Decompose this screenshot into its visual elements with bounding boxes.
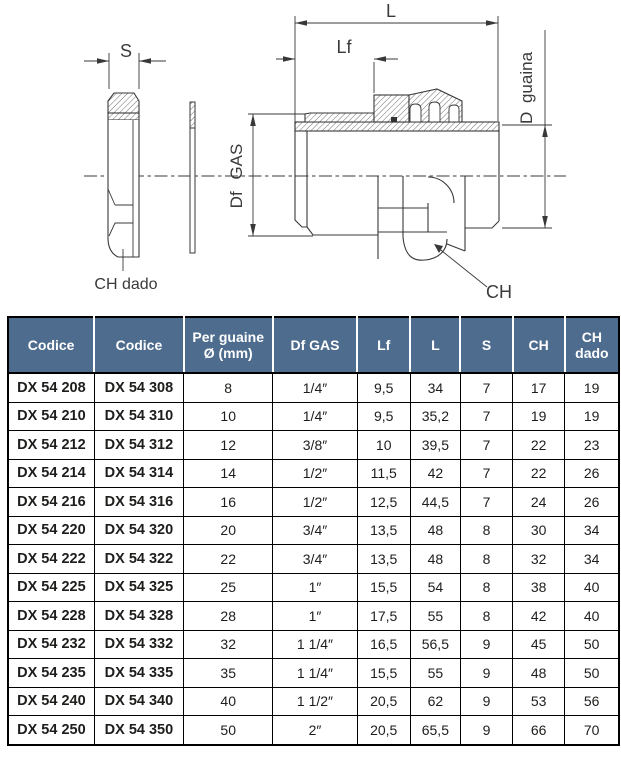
column-header-ch: CH (513, 317, 565, 373)
value-cell: 28 (184, 602, 273, 631)
value-cell: 45 (513, 630, 565, 659)
code-cell: DX 54 325 (94, 573, 183, 602)
column-header-per-guaine: Per guaine Ø (mm) (184, 317, 273, 373)
value-cell: 1 1/4″ (273, 630, 357, 659)
value-cell: 12 (184, 431, 273, 460)
value-cell: 32 (513, 545, 565, 574)
value-cell: 65,5 (410, 716, 460, 745)
value-cell: 11,5 (357, 459, 410, 488)
value-cell: 42 (513, 602, 565, 631)
value-cell: 55 (410, 659, 460, 688)
table-row: DX 54 228DX 54 328281″17,55584240 (8, 602, 619, 631)
dim-label-d-guaina: D guaina (517, 51, 536, 124)
value-cell: 10 (184, 402, 273, 431)
value-cell: 16 (184, 488, 273, 517)
table-row: DX 54 208DX 54 30881/4″9,53471719 (8, 373, 619, 402)
dim-label-ch-dado: CH dado (94, 276, 157, 293)
value-cell: 7 (460, 459, 512, 488)
value-cell: 16,5 (357, 630, 410, 659)
value-cell: 3/8″ (273, 431, 357, 460)
column-header-df-gas: Df GAS (273, 317, 357, 373)
value-cell: 1/2″ (273, 488, 357, 517)
column-header-l: L (410, 317, 460, 373)
value-cell: 1 1/4″ (273, 659, 357, 688)
value-cell: 9 (460, 630, 512, 659)
arrowhead (542, 125, 548, 137)
value-cell: 40 (565, 602, 619, 631)
arrowhead (374, 56, 386, 62)
dim-label-l: L (386, 1, 396, 21)
technical-drawing: S CH dado (0, 0, 621, 312)
dim-lf (276, 59, 398, 93)
value-cell: 66 (513, 716, 565, 745)
value-cell: 9,5 (357, 402, 410, 431)
gland-body-section (295, 89, 499, 260)
value-cell: 8 (460, 573, 512, 602)
arrowhead (250, 224, 256, 236)
arrowhead (283, 56, 295, 62)
code-cell: DX 54 240 (8, 687, 94, 716)
dim-label-ch: CH (486, 282, 512, 302)
value-cell: 7 (460, 402, 512, 431)
arrowhead (434, 244, 443, 253)
code-cell: DX 54 316 (94, 488, 183, 517)
value-cell: 34 (565, 545, 619, 574)
washer-side-view (190, 102, 195, 253)
value-cell: 30 (513, 516, 565, 545)
value-cell: 42 (410, 459, 460, 488)
value-cell: 50 (565, 659, 619, 688)
code-cell: DX 54 312 (94, 431, 183, 460)
value-cell: 9,5 (357, 373, 410, 402)
table-row: DX 54 225DX 54 325251″15,55483840 (8, 573, 619, 602)
value-cell: 13,5 (357, 545, 410, 574)
code-cell: DX 54 328 (94, 602, 183, 631)
code-cell: DX 54 220 (8, 516, 94, 545)
value-cell: 26 (565, 488, 619, 517)
value-cell: 8 (460, 516, 512, 545)
code-cell: DX 54 335 (94, 659, 183, 688)
table-body: DX 54 208DX 54 30881/4″9,53471719DX 54 2… (8, 373, 619, 745)
dim-label-s: S (120, 41, 132, 61)
column-header-codice-2: Codice (94, 317, 183, 373)
value-cell: 3/4″ (273, 516, 357, 545)
value-cell: 48 (513, 659, 565, 688)
value-cell: 35 (184, 659, 273, 688)
code-cell: DX 54 216 (8, 488, 94, 517)
code-cell: DX 54 228 (8, 602, 94, 631)
table-row: DX 54 220DX 54 320203/4″13,54883034 (8, 516, 619, 545)
value-cell: 53 (513, 687, 565, 716)
value-cell: 40 (565, 573, 619, 602)
table-row: DX 54 232DX 54 332321 1/4″16,556,594550 (8, 630, 619, 659)
code-cell: DX 54 250 (8, 716, 94, 745)
code-cell: DX 54 225 (8, 573, 94, 602)
code-cell: DX 54 320 (94, 516, 183, 545)
arrowhead (139, 58, 151, 64)
value-cell: 20 (184, 516, 273, 545)
value-cell: 40 (184, 687, 273, 716)
code-cell: DX 54 222 (8, 545, 94, 574)
value-cell: 39,5 (410, 431, 460, 460)
value-cell: 9 (460, 659, 512, 688)
table-row: DX 54 212DX 54 312123/8″1039,572223 (8, 431, 619, 460)
code-cell: DX 54 310 (94, 402, 183, 431)
value-cell: 54 (410, 573, 460, 602)
value-cell: 9 (460, 716, 512, 745)
value-cell: 1/4″ (273, 402, 357, 431)
value-cell: 2″ (273, 716, 357, 745)
table-row: DX 54 222DX 54 322223/4″13,54883234 (8, 545, 619, 574)
code-cell: DX 54 214 (8, 459, 94, 488)
value-cell: 48 (410, 516, 460, 545)
arrowhead (295, 20, 307, 26)
value-cell: 19 (565, 402, 619, 431)
column-header-s: S (460, 317, 512, 373)
value-cell: 24 (513, 488, 565, 517)
code-cell: DX 54 340 (94, 687, 183, 716)
code-cell: DX 54 308 (94, 373, 183, 402)
value-cell: 8 (460, 545, 512, 574)
value-cell: 44,5 (410, 488, 460, 517)
value-cell: 70 (565, 716, 619, 745)
code-cell: DX 54 235 (8, 659, 94, 688)
dim-label-df-gas: Df GAS (227, 144, 246, 209)
value-cell: 23 (565, 431, 619, 460)
dimensions-table: Codice Codice Per guaine Ø (mm) Df GAS L… (7, 316, 620, 746)
value-cell: 12,5 (357, 488, 410, 517)
table-row: DX 54 214DX 54 314141/2″11,54272226 (8, 459, 619, 488)
arrowhead (486, 20, 498, 26)
code-cell: DX 54 322 (94, 545, 183, 574)
nut-side-view (108, 93, 139, 257)
value-cell: 17,5 (357, 602, 410, 631)
value-cell: 38 (513, 573, 565, 602)
table-row: DX 54 210DX 54 310101/4″9,535,271919 (8, 402, 619, 431)
value-cell: 55 (410, 602, 460, 631)
value-cell: 7 (460, 373, 512, 402)
code-cell: DX 54 212 (8, 431, 94, 460)
value-cell: 50 (184, 716, 273, 745)
value-cell: 7 (460, 488, 512, 517)
value-cell: 1″ (273, 602, 357, 631)
value-cell: 14 (184, 459, 273, 488)
value-cell: 3/4″ (273, 545, 357, 574)
value-cell: 13,5 (357, 516, 410, 545)
catalog-page: S CH dado (0, 0, 621, 765)
table-header-row: Codice Codice Per guaine Ø (mm) Df GAS L… (8, 317, 619, 373)
ch-leader (437, 247, 487, 287)
table-row: DX 54 250DX 54 350502″20,565,596670 (8, 716, 619, 745)
column-header-lf: Lf (357, 317, 410, 373)
value-cell: 1/2″ (273, 459, 357, 488)
value-cell: 20,5 (357, 716, 410, 745)
code-cell: DX 54 314 (94, 459, 183, 488)
dim-label-lf: Lf (336, 37, 352, 57)
value-cell: 10 (357, 431, 410, 460)
value-cell: 34 (410, 373, 460, 402)
dim-df-gas (248, 114, 313, 236)
value-cell: 56,5 (410, 630, 460, 659)
value-cell: 8 (184, 373, 273, 402)
value-cell: 22 (184, 545, 273, 574)
table-row: DX 54 240DX 54 340401 1/2″20,56295356 (8, 687, 619, 716)
value-cell: 22 (513, 459, 565, 488)
code-cell: DX 54 232 (8, 630, 94, 659)
value-cell: 7 (460, 431, 512, 460)
value-cell: 48 (410, 545, 460, 574)
value-cell: 19 (565, 373, 619, 402)
value-cell: 32 (184, 630, 273, 659)
table-row: DX 54 216DX 54 316161/2″12,544,572426 (8, 488, 619, 517)
column-header-ch-dado: CH dado (565, 317, 619, 373)
value-cell: 19 (513, 402, 565, 431)
value-cell: 1″ (273, 573, 357, 602)
code-cell: DX 54 208 (8, 373, 94, 402)
value-cell: 15,5 (357, 659, 410, 688)
column-header-codice-1: Codice (8, 317, 94, 373)
value-cell: 35,2 (410, 402, 460, 431)
value-cell: 26 (565, 459, 619, 488)
arrowhead (97, 58, 109, 64)
value-cell: 62 (410, 687, 460, 716)
arrowhead (250, 114, 256, 126)
code-cell: DX 54 210 (8, 402, 94, 431)
value-cell: 15,5 (357, 573, 410, 602)
code-cell: DX 54 332 (94, 630, 183, 659)
value-cell: 34 (565, 516, 619, 545)
code-cell: DX 54 350 (94, 716, 183, 745)
table-row: DX 54 235DX 54 335351 1/4″15,55594850 (8, 659, 619, 688)
value-cell: 9 (460, 687, 512, 716)
value-cell: 50 (565, 630, 619, 659)
value-cell: 1 1/2″ (273, 687, 357, 716)
value-cell: 20,5 (357, 687, 410, 716)
value-cell: 17 (513, 373, 565, 402)
value-cell: 22 (513, 431, 565, 460)
value-cell: 1/4″ (273, 373, 357, 402)
value-cell: 25 (184, 573, 273, 602)
arrowhead (542, 216, 548, 228)
value-cell: 8 (460, 602, 512, 631)
value-cell: 56 (565, 687, 619, 716)
